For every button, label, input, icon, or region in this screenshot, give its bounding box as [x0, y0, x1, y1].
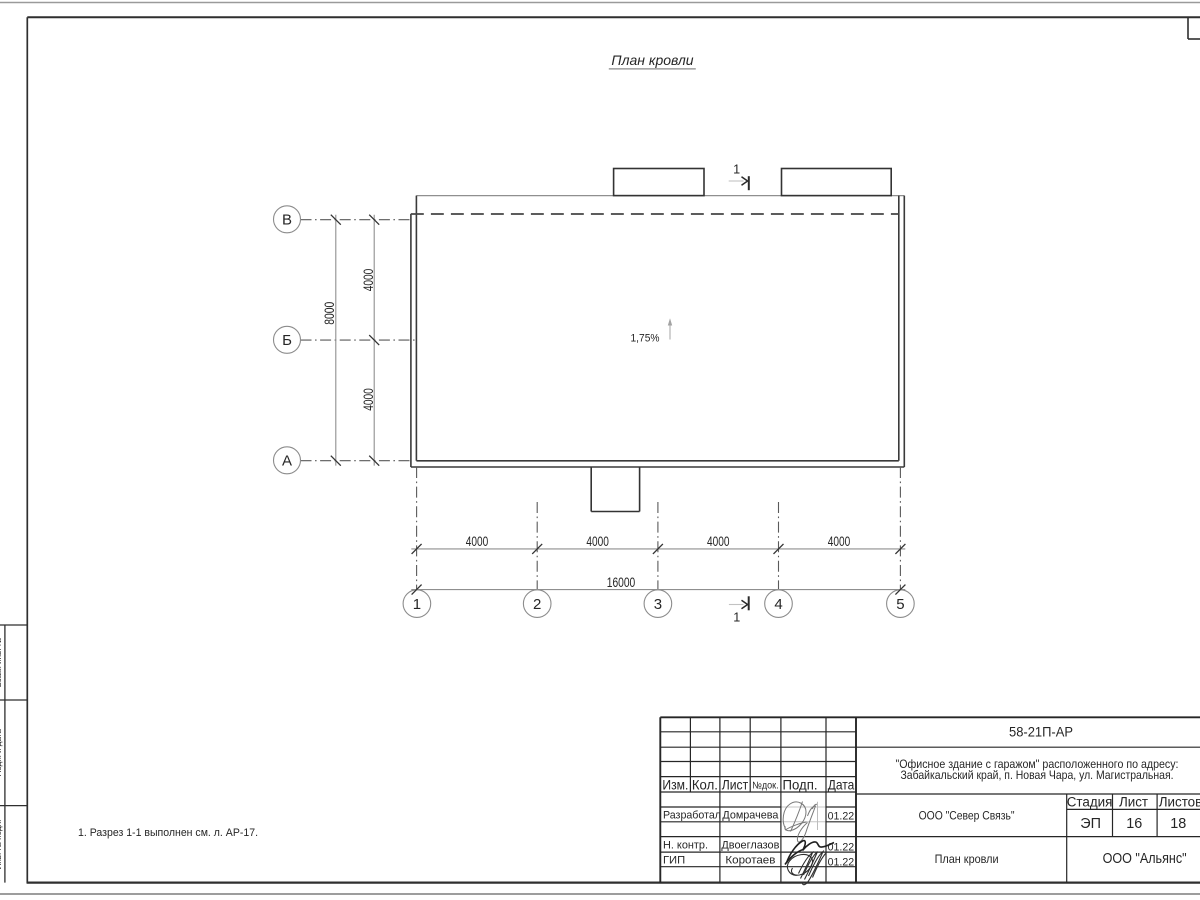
svg-text:3: 3	[654, 596, 662, 613]
svg-text:Листов: Листов	[1159, 795, 1200, 810]
svg-text:Подп.: Подп.	[783, 778, 818, 793]
svg-text:№док.: №док.	[752, 781, 779, 792]
svg-text:Домрачева: Домрачева	[722, 809, 779, 821]
svg-text:1,75%: 1,75%	[631, 332, 660, 344]
svg-text:Дата: Дата	[828, 778, 855, 793]
svg-text:План кровли: План кровли	[935, 852, 999, 866]
svg-text:4000: 4000	[586, 533, 609, 549]
svg-text:4000: 4000	[360, 269, 376, 292]
svg-text:Инв. № подл.: Инв. № подл.	[0, 820, 3, 870]
svg-text:Забайкальский край, п. Новая Ч: Забайкальский край, п. Новая Чара, ул. М…	[901, 768, 1174, 782]
svg-text:58-21П-АР: 58-21П-АР	[1009, 725, 1073, 741]
svg-text:Коротаев: Коротаев	[725, 854, 775, 866]
svg-text:4000: 4000	[828, 533, 851, 549]
svg-text:Лист: Лист	[1119, 795, 1148, 810]
svg-text:Кол.: Кол.	[692, 778, 718, 793]
svg-text:ЭП: ЭП	[1080, 816, 1101, 832]
svg-text:8000: 8000	[321, 302, 337, 325]
svg-text:Взам. инв. №: Взам. инв. №	[0, 637, 3, 687]
svg-text:1: 1	[733, 610, 740, 624]
svg-text:4000: 4000	[707, 533, 730, 549]
svg-text:В: В	[282, 212, 292, 229]
svg-text:16000: 16000	[607, 574, 636, 590]
svg-text:Стадия: Стадия	[1067, 795, 1113, 810]
svg-text:ГИП: ГИП	[663, 854, 685, 866]
svg-text:Изм.: Изм.	[662, 778, 688, 793]
svg-text:5: 5	[896, 596, 904, 613]
svg-text:Разработал: Разработал	[663, 809, 721, 821]
svg-text:Н. контр.: Н. контр.	[663, 840, 708, 852]
svg-text:1. Разрез 1-1 выполнен см. л.: 1. Разрез 1-1 выполнен см. л. АР-17.	[78, 827, 258, 839]
svg-text:2: 2	[533, 596, 541, 613]
svg-text:Лист: Лист	[722, 778, 749, 793]
svg-text:16: 16	[1126, 816, 1142, 832]
svg-text:4000: 4000	[360, 388, 376, 411]
svg-text:А: А	[282, 453, 292, 470]
svg-text:4000: 4000	[466, 533, 489, 549]
svg-text:01.22: 01.22	[828, 857, 855, 869]
svg-text:4: 4	[774, 596, 782, 613]
svg-text:Подп. и дата: Подп. и дата	[0, 729, 3, 777]
svg-text:ООО "Альянс": ООО "Альянс"	[1103, 851, 1187, 867]
svg-text:План кровли: План кровли	[611, 52, 693, 68]
svg-text:1: 1	[413, 596, 421, 613]
svg-text:01.22: 01.22	[828, 811, 855, 823]
svg-text:Двоеглазов: Двоеглазов	[721, 840, 779, 852]
svg-text:Б: Б	[282, 332, 292, 349]
svg-text:ООО "Север Связь": ООО "Север Связь"	[919, 809, 1015, 823]
svg-text:18: 18	[1170, 816, 1186, 832]
svg-text:1: 1	[733, 163, 740, 177]
